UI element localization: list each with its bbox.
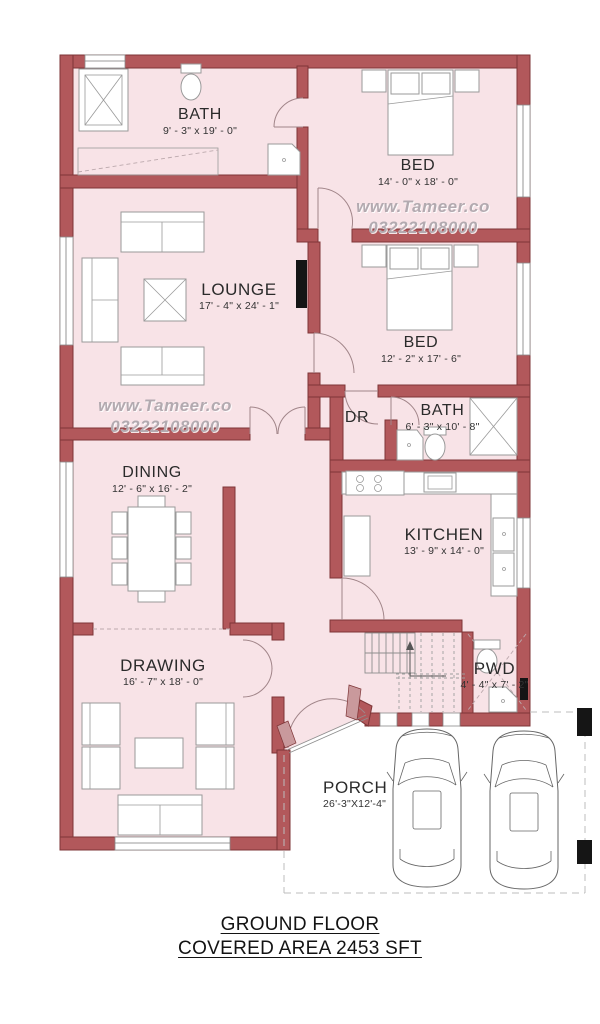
floor-plan-page: BATH 9' - 3" x 19' - 0" BED 14' - 0" x 1… xyxy=(0,0,600,1024)
room-label-bed2: BED 12' - 2" x 17' - 6" xyxy=(341,334,501,365)
room-name: BED xyxy=(338,157,498,176)
room-name: DINING xyxy=(72,464,232,483)
room-name: BATH xyxy=(385,402,500,421)
porch-column xyxy=(577,840,592,864)
room-name: LOUNGE xyxy=(159,280,319,300)
room-dims: 4' - 4" x 7' - 2" xyxy=(437,679,552,691)
room-dims: 16' - 7" x 18' - 0" xyxy=(83,676,243,688)
room-label-kitchen: KITCHEN 13' - 9" x 14' - 0" xyxy=(364,525,524,557)
room-label-dining: DINING 12' - 6" x 16' - 2" xyxy=(72,464,232,495)
room-dims: 9' - 3" x 19' - 0" xyxy=(120,125,280,137)
room-label-porch: PORCH 26'-3"X12'-4" xyxy=(323,778,453,810)
room-dims: 12' - 6" x 16' - 2" xyxy=(72,483,232,495)
room-dims: 26'-3"X12'-4" xyxy=(323,798,453,810)
room-dims: 12' - 2" x 17' - 6" xyxy=(341,353,501,365)
room-name: BED xyxy=(341,334,501,353)
room-label-bath2: BATH 6' - 3" x 10' - 8" xyxy=(385,402,500,433)
plan-title-line1: GROUND FLOOR xyxy=(0,913,600,937)
plan-title-line2: COVERED AREA 2453 SFT xyxy=(0,937,600,961)
plan-title: GROUND FLOOR COVERED AREA 2453 SFT xyxy=(0,913,600,961)
watermark-phone: 03222108000 xyxy=(85,416,245,437)
room-label-bed1: BED 14' - 0" x 18' - 0" xyxy=(338,157,498,188)
room-dims: 6' - 3" x 10' - 8" xyxy=(385,421,500,433)
room-dims: 17' - 4" x 24' - 1" xyxy=(159,300,319,312)
room-name: PWD xyxy=(437,659,552,679)
watermark: www.Tameer.co 03222108000 xyxy=(343,196,503,239)
floor-plan-drawing xyxy=(0,0,600,1024)
room-label-pwd: PWD 4' - 4" x 7' - 2" xyxy=(437,659,552,691)
watermark: www.Tameer.co 03222108000 xyxy=(85,395,245,438)
room-label-drawing: DRAWING 16' - 7" x 18' - 0" xyxy=(83,656,243,688)
room-label-bath1: BATH 9' - 3" x 19' - 0" xyxy=(120,106,280,137)
room-label-lounge: LOUNGE 17' - 4" x 24' - 1" xyxy=(159,280,319,312)
room-name: PORCH xyxy=(323,778,453,798)
room-dims: 14' - 0" x 18' - 0" xyxy=(338,176,498,188)
room-name: KITCHEN xyxy=(364,525,524,545)
watermark-phone: 03222108000 xyxy=(343,217,503,238)
watermark-site: www.Tameer.co xyxy=(85,395,245,416)
porch-column xyxy=(577,708,592,736)
watermark-site: www.Tameer.co xyxy=(343,196,503,217)
car-icon xyxy=(484,731,564,889)
room-dims: 13' - 9" x 14' - 0" xyxy=(364,545,524,557)
room-name: BATH xyxy=(120,106,280,125)
room-name: DRAWING xyxy=(83,656,243,676)
